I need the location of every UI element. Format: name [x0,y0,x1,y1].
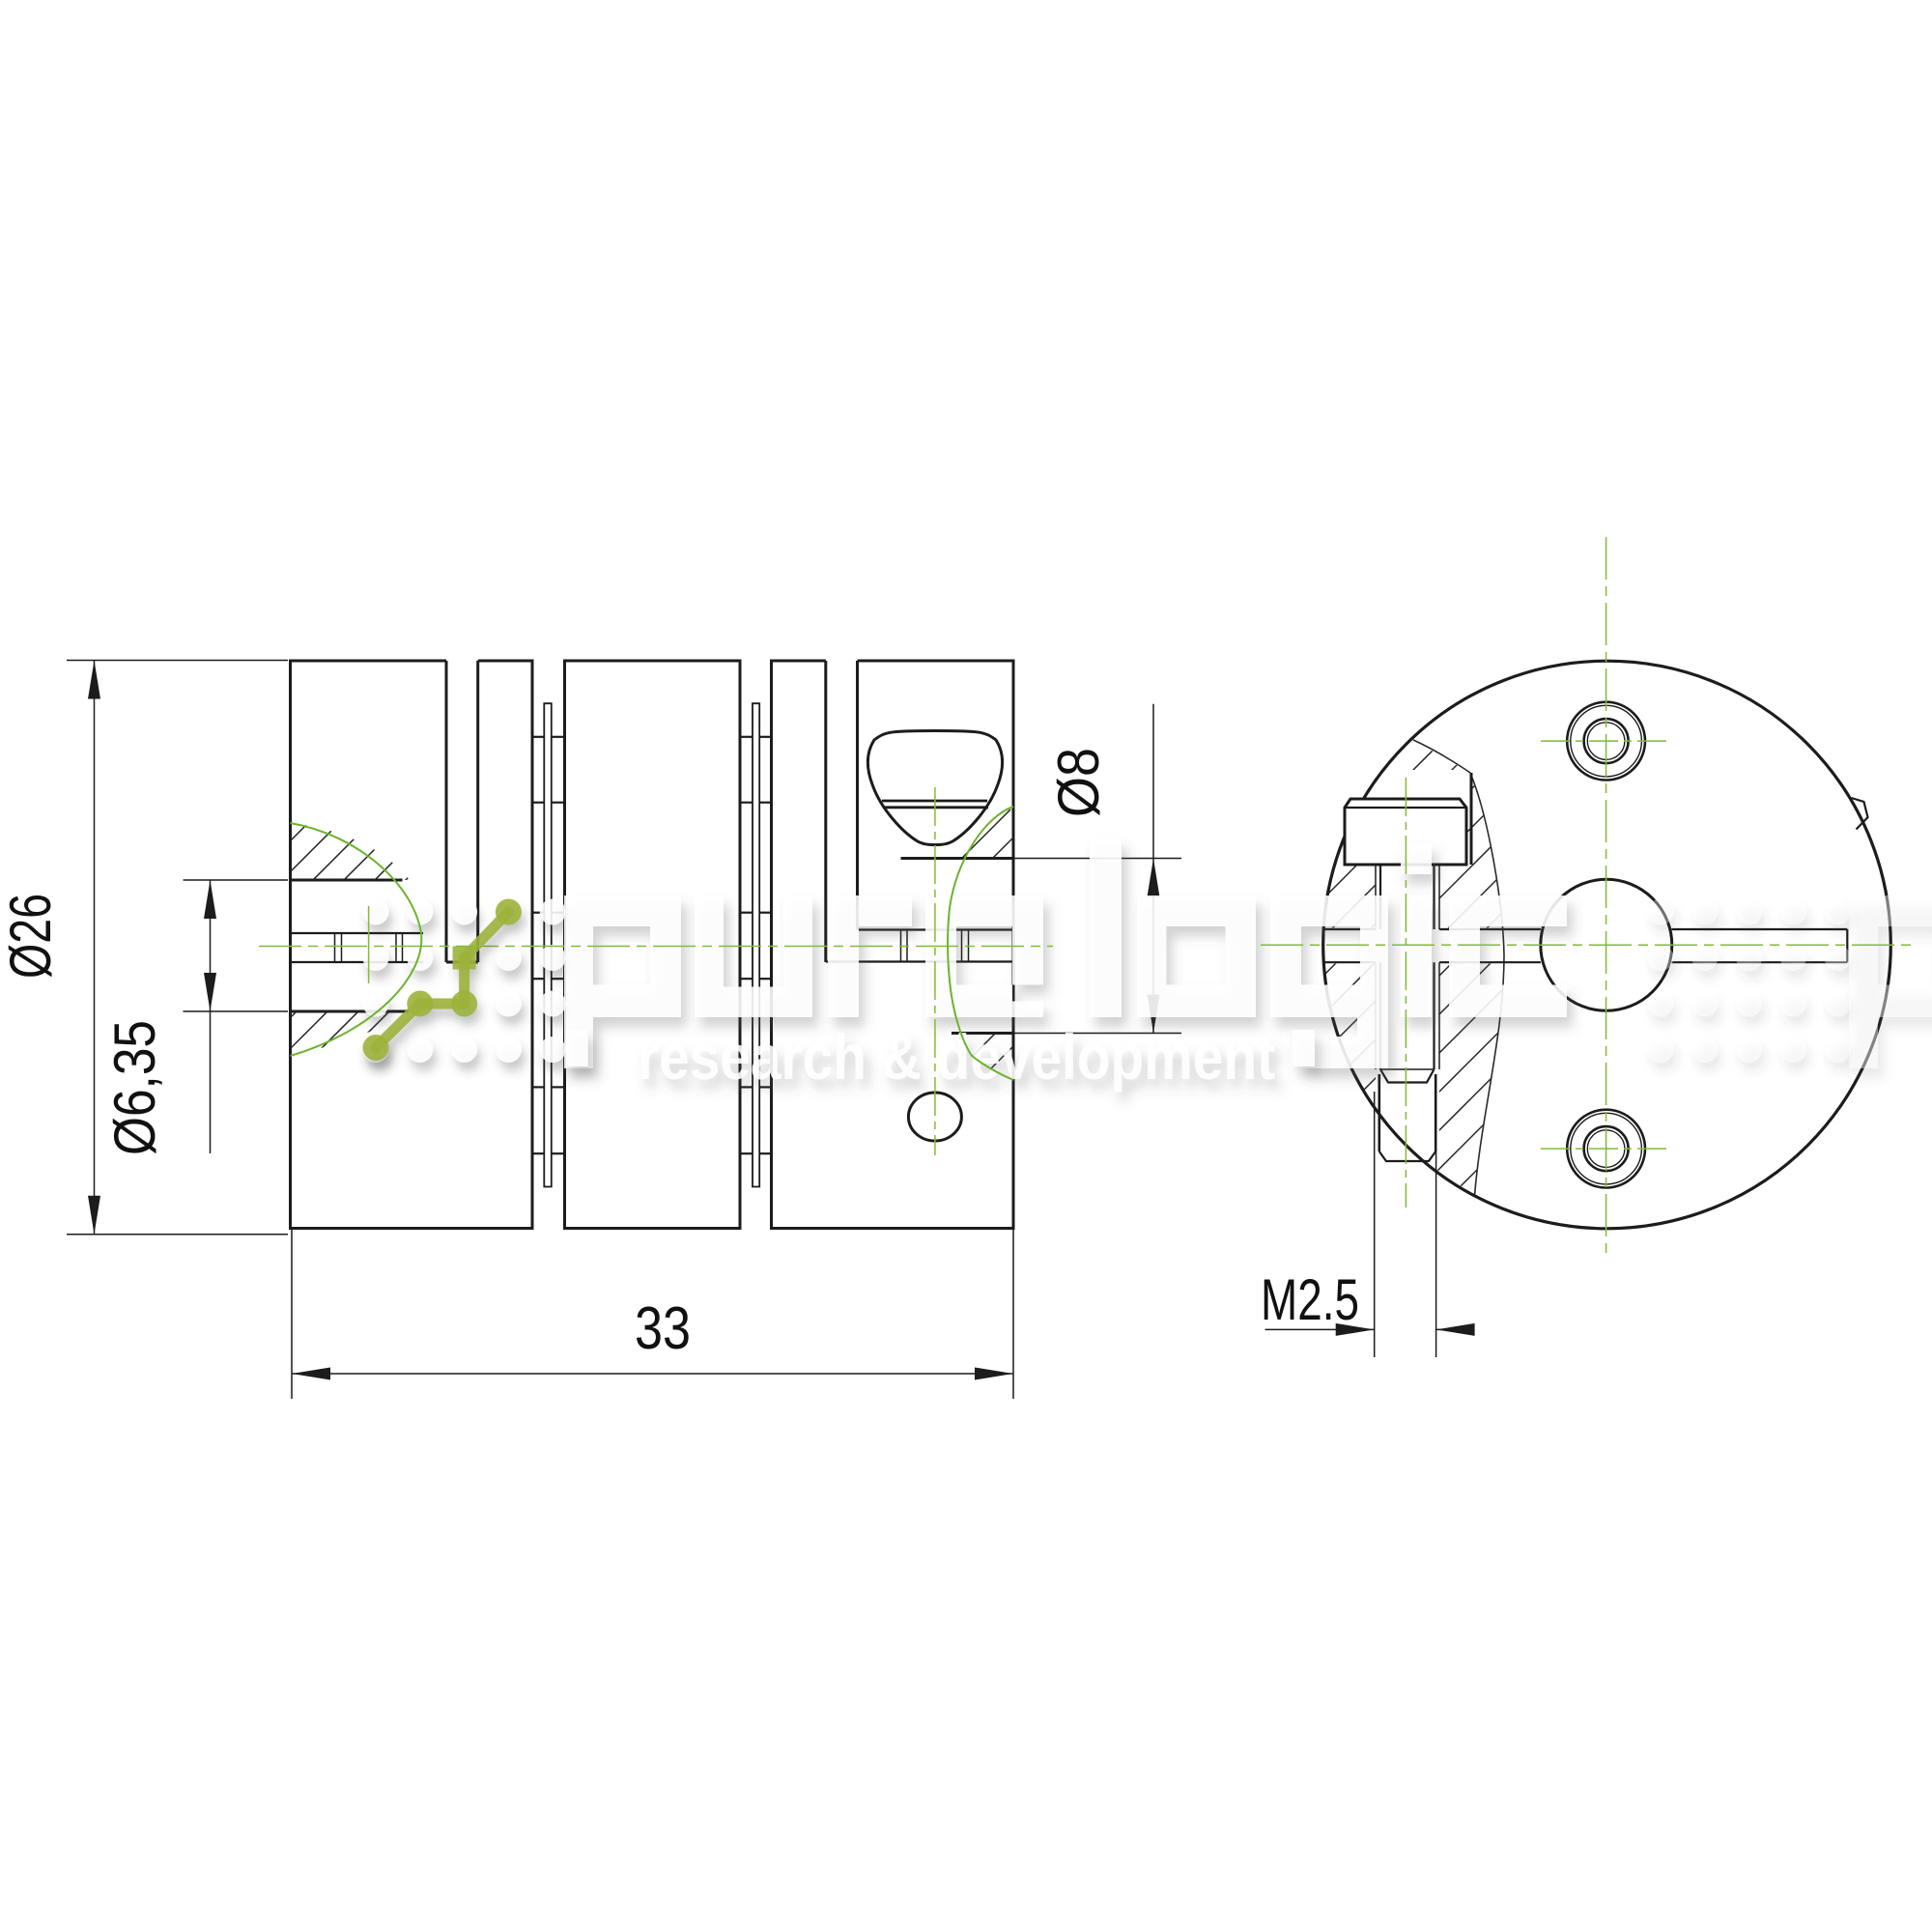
svg-text:Ø6,35: Ø6,35 [102,1020,167,1155]
svg-text:33: 33 [635,1295,691,1362]
svg-text:Ø26: Ø26 [0,894,63,979]
svg-text:M2.5: M2.5 [1261,1267,1359,1332]
svg-text:research & development: research & development [638,1021,1275,1093]
svg-text:Ø8: Ø8 [1046,748,1111,817]
